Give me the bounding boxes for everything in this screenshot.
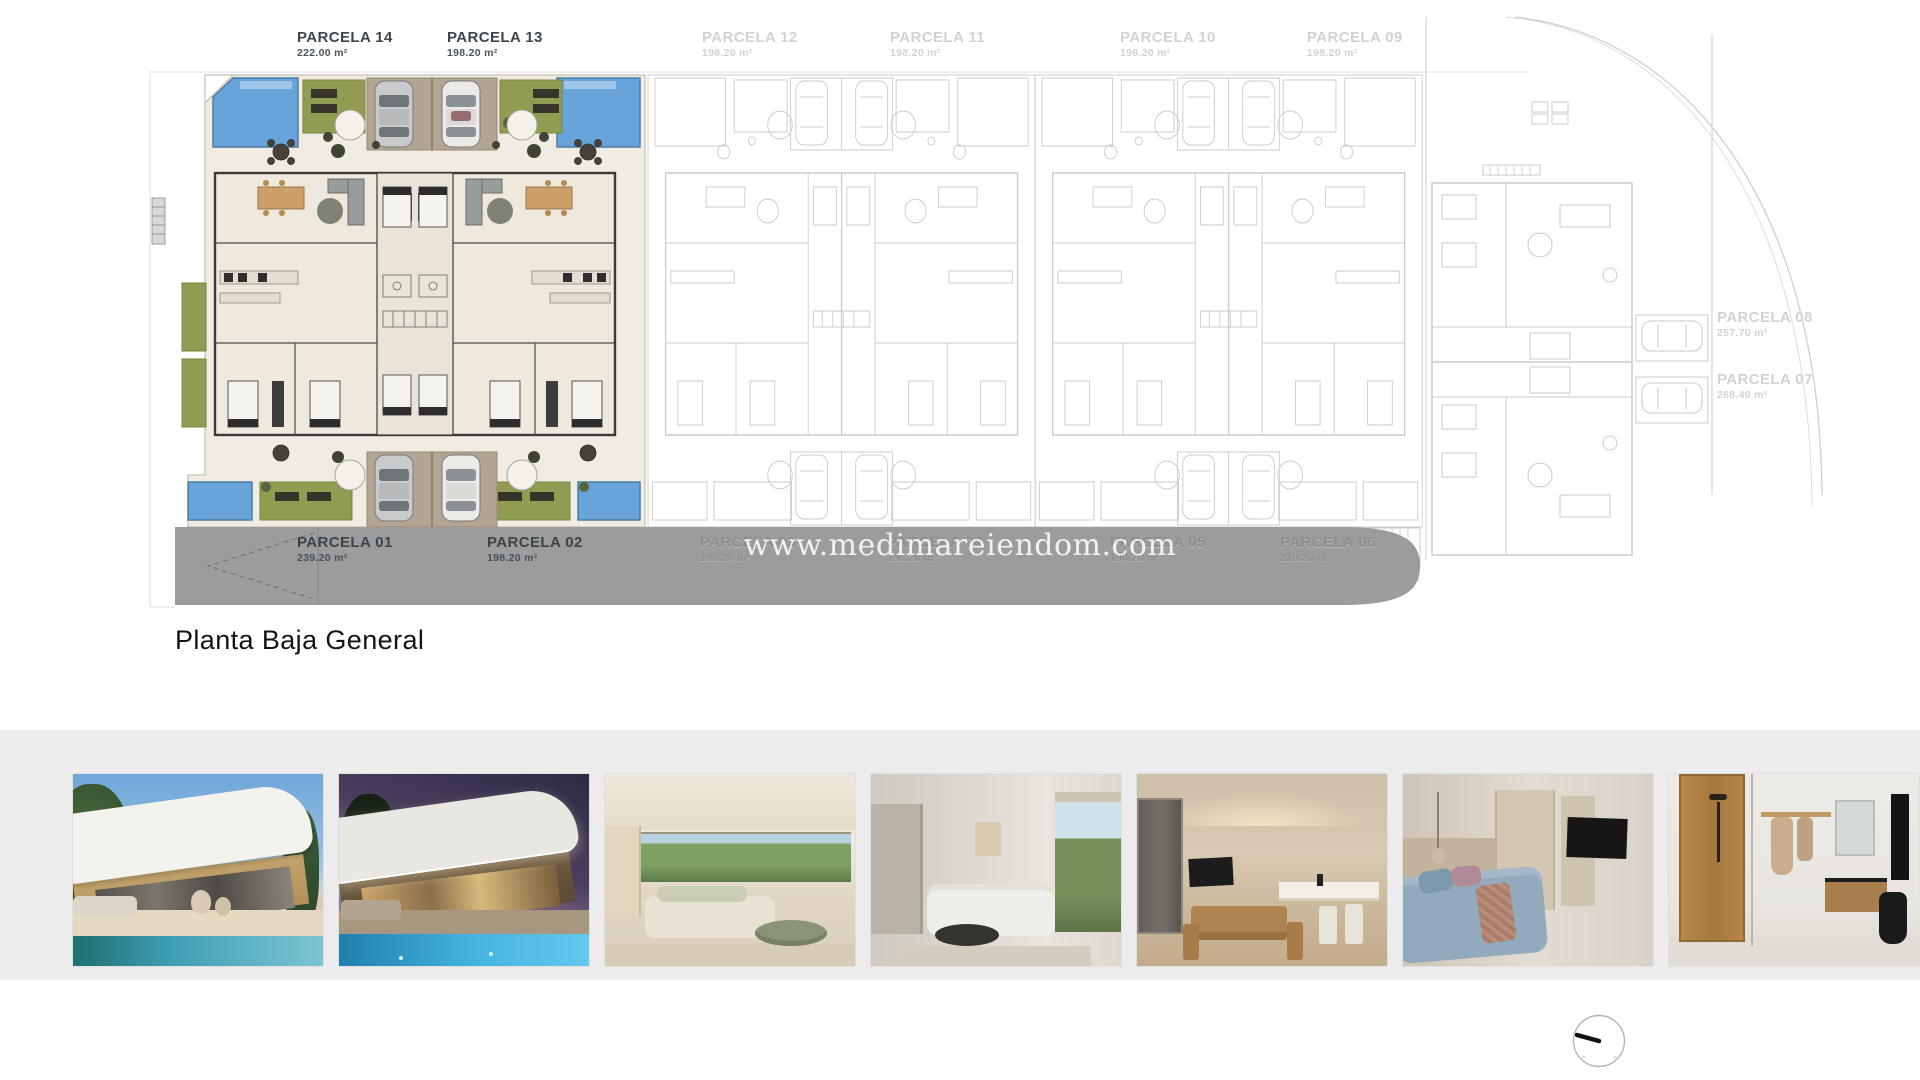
outline-villa-pair-10-09 xyxy=(1035,75,1422,527)
parcel-label-07: PARCELA 07268.40 m² xyxy=(1717,372,1813,401)
parcel-label-02: PARCELA 02198.20 m² xyxy=(487,535,583,564)
kitchen-island xyxy=(605,826,641,916)
outline-villa-pair-12-11 xyxy=(648,75,1035,527)
dining-table xyxy=(258,187,304,209)
garden xyxy=(260,482,352,520)
chair xyxy=(1287,922,1303,960)
car-icon xyxy=(1642,321,1702,351)
parcel-label-13: PARCELA 13198.20 m² xyxy=(447,30,543,59)
pool-light xyxy=(399,956,403,960)
pendant-lamp-shade xyxy=(1432,848,1444,864)
wall-tv xyxy=(1566,817,1627,859)
car-icon xyxy=(442,81,480,147)
parcel-label-14: PARCELA 14222.00 m² xyxy=(297,30,393,59)
site-plan-section: PARCELA 14222.00 m² PARCELA 13198.20 m² … xyxy=(0,0,1920,710)
dark-coffee-table xyxy=(935,924,999,946)
kitchen-cabinets xyxy=(871,804,923,934)
parcel-label-11: PARCELA 11198.20 m² xyxy=(890,30,985,59)
bathrobe xyxy=(1797,817,1813,861)
black-cabinet xyxy=(1891,794,1909,880)
kitchen-counter xyxy=(1279,882,1379,898)
faucet xyxy=(1317,874,1323,886)
gallery-photo-bedroom[interactable] xyxy=(1403,774,1653,966)
glass-screen xyxy=(1751,774,1753,946)
floor xyxy=(1669,948,1919,966)
outline-villa-pair-08-07 xyxy=(1426,17,1822,560)
outdoor-sofa xyxy=(341,900,401,920)
ceiling xyxy=(605,774,855,830)
gallery-photo-living-room-white[interactable] xyxy=(871,774,1121,966)
gallery-photo-bathroom[interactable] xyxy=(1669,774,1919,966)
sofa xyxy=(348,179,364,225)
parcel-label-01: PARCELA 01239.20 m² xyxy=(297,535,393,564)
vanity xyxy=(1825,878,1887,912)
parcel-label-08: PARCELA 08257.70 m² xyxy=(1717,310,1813,339)
rug xyxy=(901,946,1091,966)
mirror xyxy=(1835,800,1875,856)
glass-door xyxy=(1137,798,1183,934)
photo-gallery xyxy=(0,730,1920,980)
car-icon xyxy=(375,455,413,521)
outdoor-sofa xyxy=(73,896,137,918)
page: PARCELA 14222.00 m² PARCELA 13198.20 m² … xyxy=(0,0,1920,1080)
led-ceiling-light xyxy=(1157,792,1367,826)
parcel-label-09: PARCELA 09198.20 m² xyxy=(1307,30,1403,59)
stool xyxy=(1345,904,1363,944)
car-icon xyxy=(442,455,480,521)
dining-table xyxy=(1191,906,1287,940)
stool xyxy=(1319,906,1337,944)
dining-table xyxy=(526,187,572,209)
car-icon xyxy=(1642,383,1702,413)
pendant-lamp xyxy=(1437,792,1439,850)
coat-rail xyxy=(1761,812,1831,817)
terrace-window xyxy=(1055,802,1121,932)
stair-ladder xyxy=(152,198,165,244)
pillow xyxy=(1450,864,1482,887)
gallery-photo-living-room-garden[interactable] xyxy=(605,774,855,966)
garden-view-window xyxy=(639,834,851,882)
pool xyxy=(73,936,323,966)
gallery-photo-exterior-day[interactable] xyxy=(73,774,323,966)
gallery-photo-exterior-dusk[interactable] xyxy=(339,774,589,966)
outdoor-chair xyxy=(215,897,231,916)
chair xyxy=(1183,924,1199,960)
pool xyxy=(188,482,252,520)
car-icon xyxy=(375,81,413,147)
lit-pool xyxy=(339,934,589,966)
watermark: www.medimareiendom.com xyxy=(720,528,1200,563)
site-plan-drawing xyxy=(0,0,1920,710)
shower-fixture xyxy=(1717,802,1720,862)
tv xyxy=(1188,857,1233,887)
cushions xyxy=(657,886,747,902)
black-toilet xyxy=(1879,892,1907,944)
page-title: Planta Baja General xyxy=(175,625,424,656)
colored-villa-pair xyxy=(182,75,645,527)
bathrobe xyxy=(1771,817,1793,875)
outdoor-chair xyxy=(191,890,211,914)
coffee-table xyxy=(755,920,827,946)
parcel-label-06: PARCELA 06210.20 m² xyxy=(1280,535,1376,564)
wall-art xyxy=(975,822,1001,856)
gallery-photo-kitchen-dining[interactable] xyxy=(1137,774,1387,966)
parcel-label-12: PARCELA 12198.20 m² xyxy=(702,30,798,59)
pool-light xyxy=(489,952,493,956)
clock-icon xyxy=(1572,1014,1628,1070)
sofa xyxy=(466,179,482,225)
shower-head xyxy=(1709,794,1727,800)
floor xyxy=(605,944,855,966)
parcel-label-10: PARCELA 10198.20 m² xyxy=(1120,30,1216,59)
